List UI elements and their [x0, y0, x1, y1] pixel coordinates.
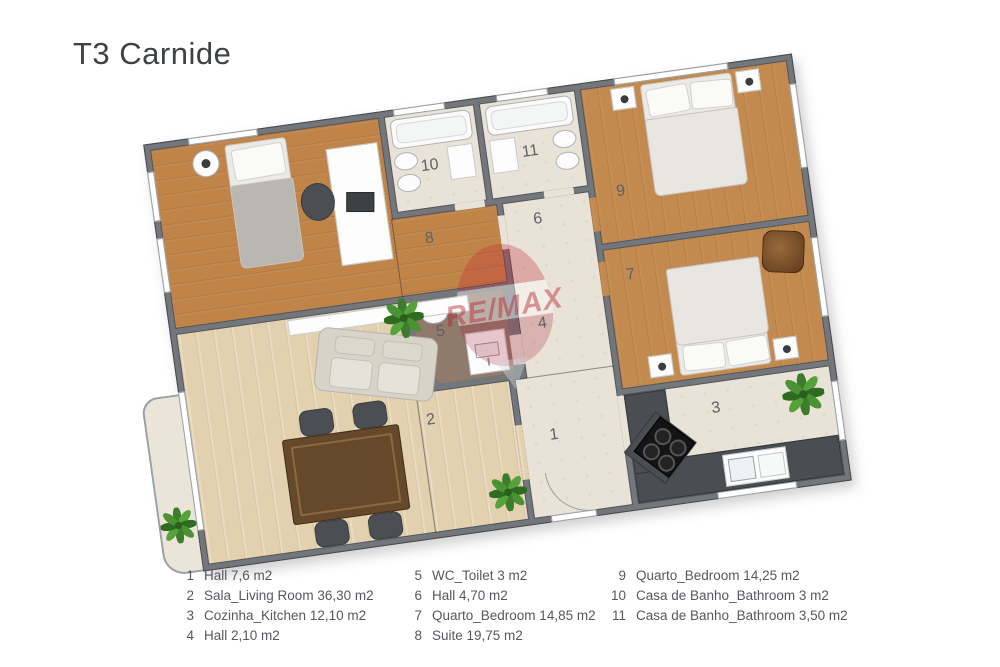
- legend-item: 9Quarto_Bedroom 14,25 m2: [604, 568, 848, 583]
- plant-icon-kitchen: [780, 371, 827, 418]
- wc5-shower: [465, 328, 510, 375]
- legend-column-3: 9Quarto_Bedroom 14,25 m2 10Casa de Banho…: [604, 568, 848, 628]
- legend-text: Hall 4,70 m2: [432, 588, 508, 603]
- bedroom9-pillow-left: [645, 82, 692, 117]
- kitchen-sink-basin: [728, 456, 757, 482]
- bath10-bathtub-basin: [395, 115, 468, 145]
- legend-text: Casa de Banho_Bathroom 3,50 m2: [636, 608, 848, 623]
- bedroom9-bed: [640, 72, 746, 194]
- room-suite-corridor-floor: [392, 205, 507, 296]
- living-sofa: [313, 326, 439, 402]
- legend-text: Quarto_Bedroom 14,25 m2: [636, 568, 800, 583]
- legend-text: Casa de Banho_Bathroom 3 m2: [636, 588, 829, 603]
- plant-icon-hall1: [487, 471, 530, 514]
- legend-text: WC_Toilet 3 m2: [432, 568, 527, 583]
- page-title: T3 Carnide: [73, 36, 231, 72]
- legend-number: 10: [604, 588, 626, 603]
- bedroom7-nightstand-right: [772, 336, 799, 361]
- legend-item: 1Hall 7,6 m2: [172, 568, 374, 583]
- plant-icon-balcony: [158, 505, 199, 546]
- legend-number: 4: [172, 628, 194, 643]
- bedroom7-bed: [666, 256, 772, 376]
- dining-chair-4: [367, 510, 404, 540]
- legend-item: 11Casa de Banho_Bathroom 3,50 m2: [604, 608, 848, 623]
- legend-item: 4Hall 2,10 m2: [172, 628, 374, 643]
- legend-text: Suite 19,75 m2: [432, 628, 523, 643]
- bedroom9-nightstand-right: [735, 68, 762, 93]
- bedroom7-nightstand-left: [648, 353, 675, 378]
- legend-number: 6: [400, 588, 422, 603]
- floor-plan: RE/MAX 1 2 3 4 5 6 7 8 9 10 11: [143, 54, 852, 572]
- laptop-icon: [346, 192, 374, 212]
- kitchen-sink-drainer: [757, 452, 786, 478]
- sofa-cushion-right: [376, 362, 421, 396]
- bedroom7-pillow-right: [725, 334, 771, 367]
- bedroom7-armchair: [762, 230, 805, 273]
- legend-item: 3Cozinha_Kitchen 12,10 m2: [172, 608, 374, 623]
- bedroom7-duvet: [666, 256, 770, 346]
- room-label-bath10: 10: [420, 156, 440, 176]
- legend-item: 5WC_Toilet 3 m2: [400, 568, 596, 583]
- legend-number: 11: [604, 608, 626, 623]
- plant-icon-living-top: [381, 295, 426, 340]
- legend-number: 9: [604, 568, 626, 583]
- legend-item: 6Hall 4,70 m2: [400, 588, 596, 603]
- dining-table-top: [291, 433, 402, 517]
- bedroom9-nightstand-left: [610, 86, 637, 111]
- floorplan-page: T3 Carnide: [0, 0, 1000, 667]
- legend-column-1: 1Hall 7,6 m2 2Sala_Living Room 36,30 m2 …: [172, 568, 374, 648]
- bedroom9-duvet: [645, 107, 749, 197]
- legend-number: 5: [400, 568, 422, 583]
- legend-text: Sala_Living Room 36,30 m2: [204, 588, 374, 603]
- suite-bed-pillow: [230, 141, 287, 182]
- sofa-back-pillow-right: [382, 340, 424, 362]
- legend-item: 8Suite 19,75 m2: [400, 628, 596, 643]
- dining-table: [282, 424, 411, 526]
- legend-number: 2: [172, 588, 194, 603]
- legend-text: Cozinha_Kitchen 12,10 m2: [204, 608, 366, 623]
- sofa-back-pillow-left: [334, 335, 376, 357]
- bedroom9-pillow-right: [690, 78, 734, 110]
- legend-item: 10Casa de Banho_Bathroom 3 m2: [604, 588, 848, 603]
- legend-number: 8: [400, 628, 422, 643]
- suite-side-table-cup: [201, 159, 211, 169]
- legend-text: Quarto_Bedroom 14,85 m2: [432, 608, 596, 623]
- suite-bed-blanket: [230, 177, 305, 269]
- legend-item: 2Sala_Living Room 36,30 m2: [172, 588, 374, 603]
- legend-column-2: 5WC_Toilet 3 m2 6Hall 4,70 m2 7Quarto_Be…: [400, 568, 596, 648]
- legend-text: Hall 7,6 m2: [204, 568, 272, 583]
- legend-number: 1: [172, 568, 194, 583]
- bath11-washbasin: [489, 137, 519, 174]
- sofa-cushion-left: [328, 357, 373, 391]
- wc5-shower-tray: [474, 341, 500, 358]
- bath11-bathtub-basin: [490, 100, 569, 131]
- legend-text: Hall 2,10 m2: [204, 628, 280, 643]
- room-label-bath11: 11: [521, 142, 540, 162]
- bath10-washbasin: [446, 143, 476, 180]
- bedroom7-pillow-left: [682, 342, 726, 372]
- dining-chair-3: [313, 518, 350, 548]
- wc5-shower-drain: [487, 358, 490, 366]
- legend-item: 7Quarto_Bedroom 14,85 m2: [400, 608, 596, 623]
- legend-number: 7: [400, 608, 422, 623]
- legend-number: 3: [172, 608, 194, 623]
